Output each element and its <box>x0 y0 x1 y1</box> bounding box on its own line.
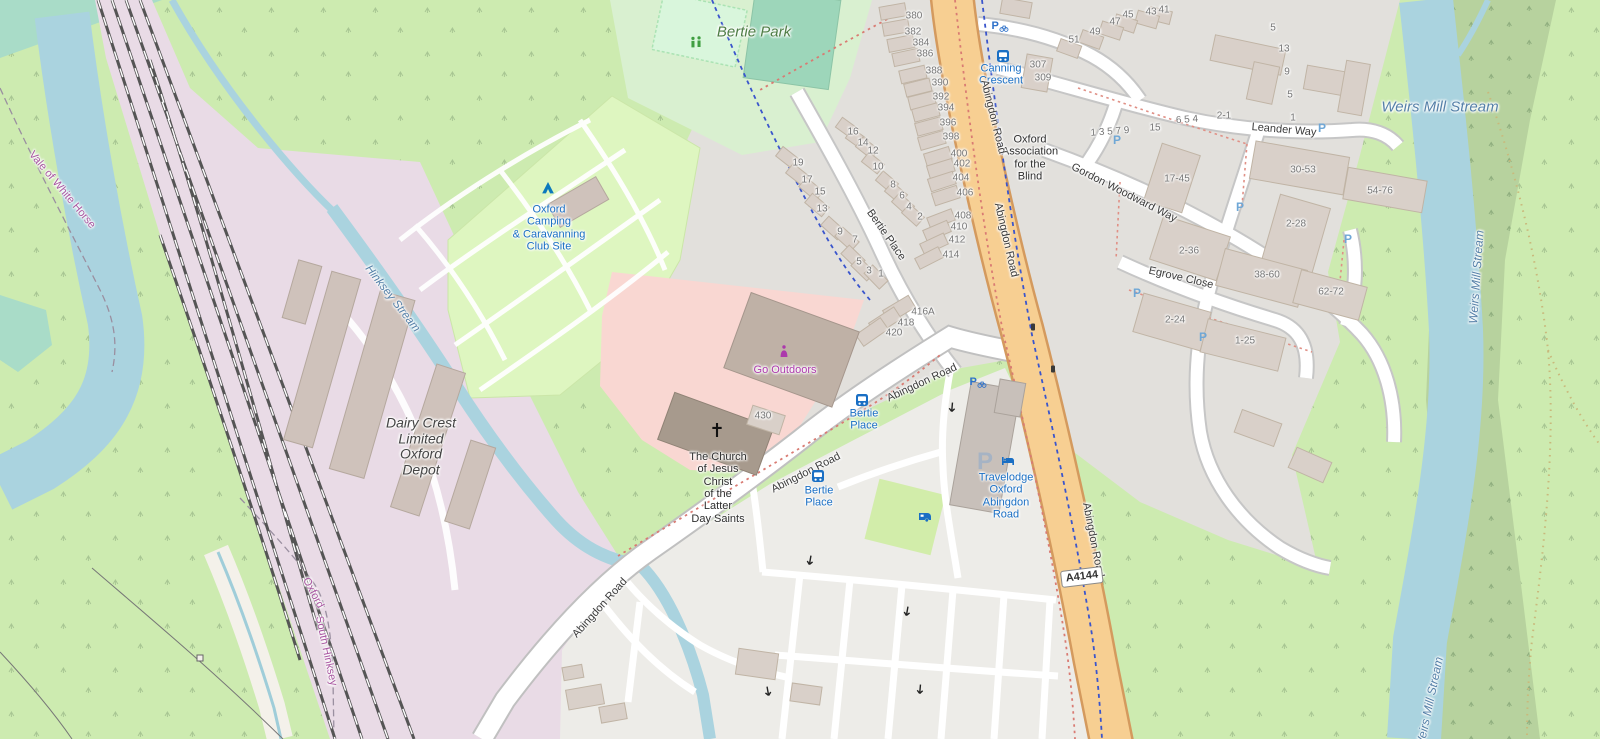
sports-pitch <box>743 0 841 90</box>
map-base-layers <box>0 0 1600 739</box>
power-pylon <box>197 655 203 661</box>
map-canvas[interactable]: Weirs Mill StreamWeirs Mill StreamWeirs … <box>0 0 1600 739</box>
